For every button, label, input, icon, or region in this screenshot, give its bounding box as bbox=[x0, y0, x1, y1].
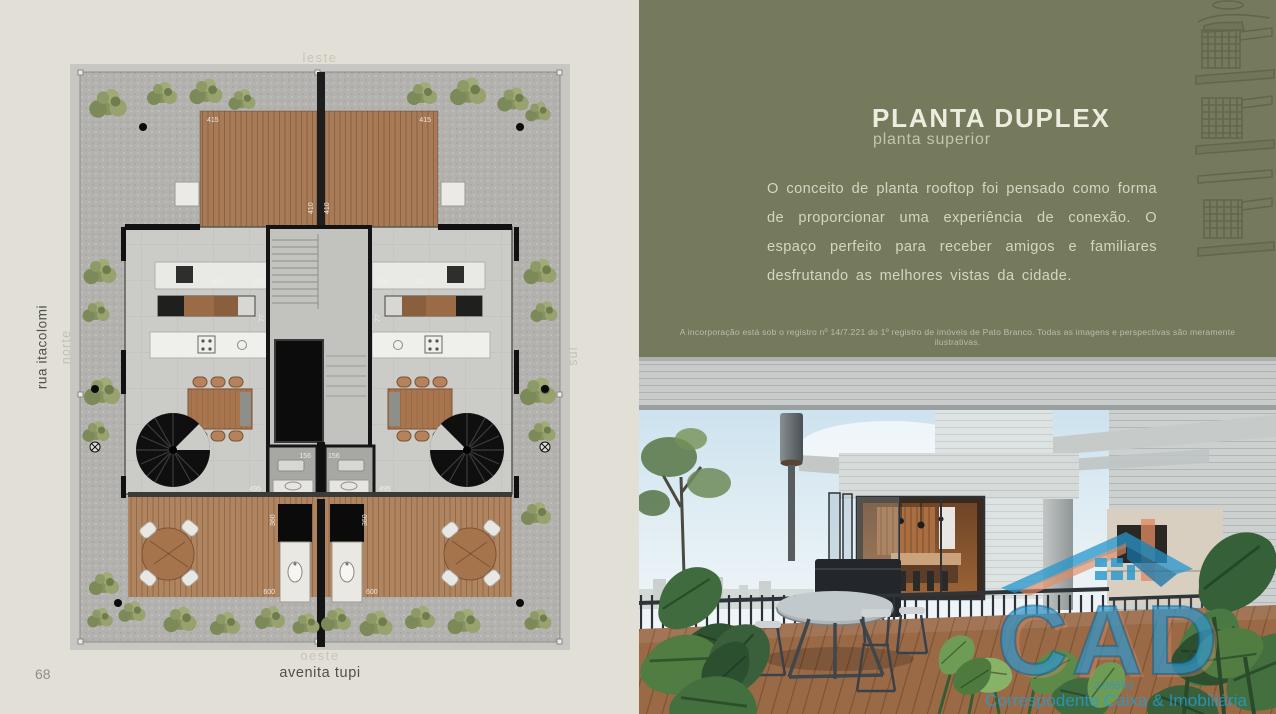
orientation-label-oeste: oeste bbox=[70, 648, 570, 663]
plan-spiral-stair-left bbox=[136, 413, 210, 487]
dim-bath-right: 156 bbox=[328, 453, 340, 460]
panel-title: PLANTA DUPLEX bbox=[872, 103, 1111, 134]
dim-stair-right: 77 bbox=[375, 314, 382, 322]
orientation-label-sul: sul bbox=[566, 346, 580, 366]
dim-bath-left: 156 bbox=[299, 453, 311, 460]
dim-deck-left: 415 bbox=[207, 117, 219, 124]
panel-disclaimer: A incorporação está sob o registro nº 14… bbox=[667, 327, 1248, 347]
balcony-sketch-icon bbox=[1184, 0, 1276, 272]
street-label-rua-itacolomi: rua itacolomi bbox=[35, 305, 50, 389]
dim-kitchen-right-width: 360 bbox=[414, 279, 426, 286]
orientation-label-norte: norte bbox=[59, 330, 73, 365]
dim-deck-right: 415 bbox=[419, 117, 431, 124]
page-number: 68 bbox=[35, 666, 51, 682]
right-page: PLANTA DUPLEX planta superior O conceito… bbox=[639, 0, 1276, 714]
panel-subtitle: planta superior bbox=[873, 131, 991, 149]
watermark-tagline: Correspodente Caixa & Imobiliária bbox=[985, 691, 1248, 710]
dim-ledge-right: 495 bbox=[379, 486, 391, 493]
dim-center-right: 410 bbox=[324, 202, 331, 214]
dim-deck-bottom-left: 600 bbox=[263, 589, 275, 596]
watermark-brand: CAD bbox=[997, 585, 1221, 695]
panel-body-text: O conceito de planta rooftop foi pensado… bbox=[767, 175, 1157, 291]
orientation-label-leste: leste bbox=[70, 50, 570, 65]
floor-plan-drawing: 415 415 410 410 360 120 120 360 77 77 15… bbox=[70, 64, 570, 650]
dim-kitchen-right-gap: 120 bbox=[376, 279, 388, 286]
plan-kitchen-right bbox=[372, 262, 490, 358]
dim-shaft-right: 360 bbox=[362, 514, 369, 526]
plan-spiral-stair-right bbox=[430, 413, 504, 487]
dim-shaft-left: 360 bbox=[270, 514, 277, 526]
dim-center-left: 410 bbox=[308, 202, 315, 214]
dim-stair-left: 77 bbox=[259, 314, 266, 322]
left-page: 415 415 410 410 360 120 120 360 77 77 15… bbox=[0, 0, 639, 714]
rooftop-render-illustration: CAD CAD J.06593 Correspodente Caixa & Im… bbox=[639, 357, 1276, 714]
plan-kitchen-left bbox=[150, 262, 268, 358]
concrete-beam bbox=[639, 357, 1276, 410]
dim-kitchen-left-width: 360 bbox=[212, 279, 224, 286]
rooftop-render-photo: CAD CAD J.06593 Correspodente Caixa & Im… bbox=[639, 357, 1276, 714]
street-label-avenita-tupi: avenita tupi bbox=[70, 665, 570, 681]
dim-ledge-left: 495 bbox=[249, 486, 261, 493]
green-text-panel: PLANTA DUPLEX planta superior O conceito… bbox=[639, 0, 1276, 357]
dim-kitchen-left-gap: 120 bbox=[252, 279, 264, 286]
dim-deck-bottom-right: 600 bbox=[366, 589, 378, 596]
